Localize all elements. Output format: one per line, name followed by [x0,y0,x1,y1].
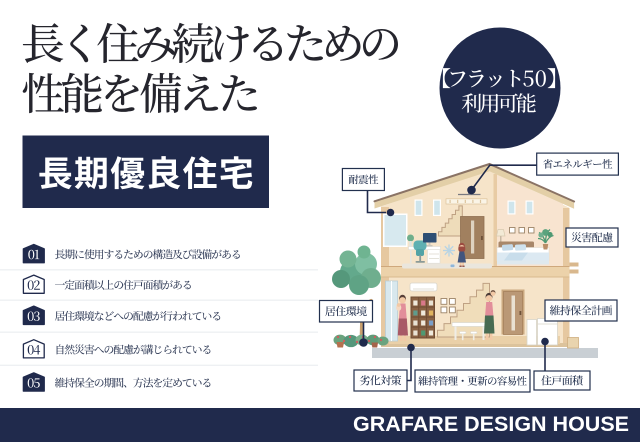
svg-text:GRAFARE DESIGN HOUSE: GRAFARE DESIGN HOUSE [353,412,629,436]
